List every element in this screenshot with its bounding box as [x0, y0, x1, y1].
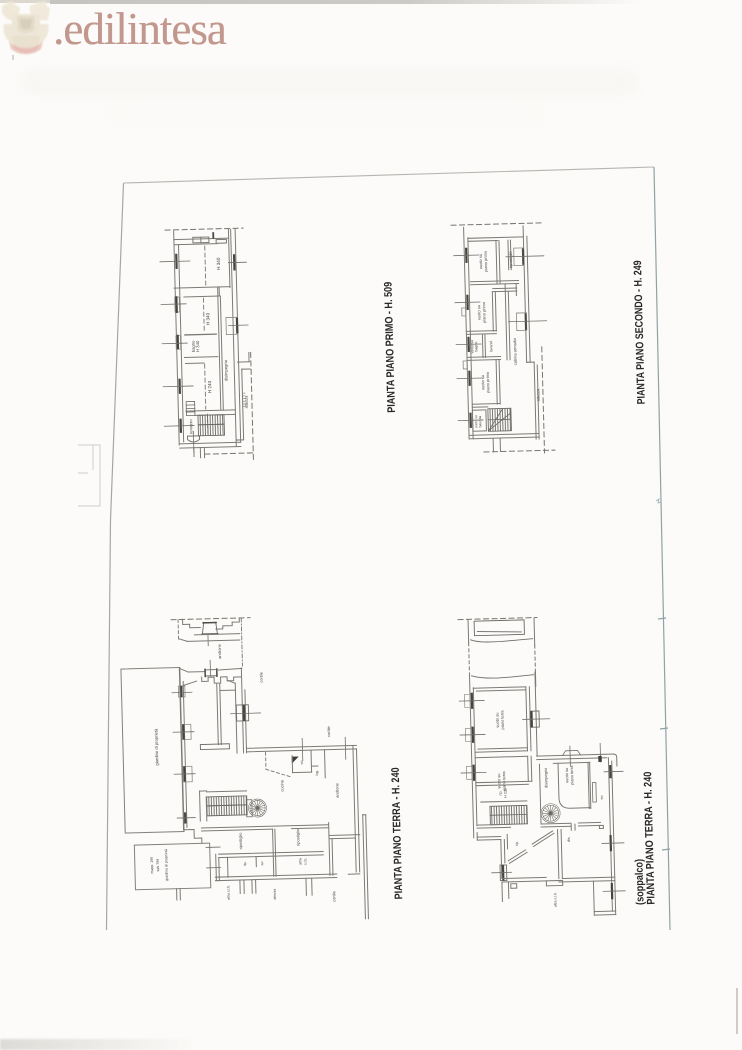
svg-text:H 240: H 240	[207, 380, 212, 393]
svg-text:androne: androne	[217, 643, 222, 659]
svg-text:piano primo: piano primo	[485, 371, 491, 393]
svg-text:cucina: cucina	[279, 779, 284, 791]
svg-text:altezza: altezza	[243, 395, 248, 409]
svg-text:PIANTA PIANO TERRA - H. 240: PIANTA PIANO TERRA - H. 240	[390, 767, 405, 899]
svg-text:ripostiglio: ripostiglio	[295, 828, 300, 846]
svg-text:lavand.: lavand.	[489, 340, 493, 352]
svg-text:s.t.b.: s.t.b.	[303, 858, 307, 866]
svg-text:H 235: H 235	[503, 788, 507, 798]
svg-text:altra s.t.b.: altra s.t.b.	[226, 885, 230, 900]
svg-text:mapp. 199: mapp. 199	[150, 857, 154, 874]
svg-text:altezza: altezza	[535, 388, 540, 402]
svg-text:piano primo: piano primo	[481, 301, 487, 323]
svg-text:disimpegno: disimpegno	[543, 767, 549, 788]
svg-text:wc: wc	[600, 795, 604, 800]
svg-text:altra: altra	[298, 858, 302, 865]
svg-text:wc: wc	[300, 760, 304, 765]
svg-text:ing.: ing.	[315, 770, 319, 776]
svg-text:piano primo: piano primo	[483, 250, 489, 272]
svg-text:PIANTA PIANO SECONDO - H. 249: PIANTA PIANO SECONDO - H. 249	[632, 260, 648, 404]
svg-text:wc: wc	[260, 861, 264, 866]
svg-text:cortile: cortile	[326, 725, 331, 737]
svg-text:cortile: cortile	[331, 890, 336, 902]
svg-text:altra s.t.b.: altra s.t.b.	[553, 892, 557, 907]
svg-text:PIANTA PIANO PRIMO - H. 509: PIANTA PIANO PRIMO - H. 509	[383, 282, 398, 413]
svg-text:cabina armadio: cabina armadio	[512, 337, 518, 365]
svg-text:H 340: H 340	[195, 340, 200, 352]
svg-text:rip.: rip.	[515, 841, 519, 846]
svg-text:H 340: H 340	[205, 312, 210, 325]
svg-text:rip.: rip.	[499, 790, 503, 795]
svg-text:piano terra: piano terra	[569, 765, 575, 785]
svg-text:disimpegno: disimpegno	[223, 359, 229, 381]
svg-text:ripostiglio: ripostiglio	[238, 832, 243, 850]
svg-text:piano terra: piano terra	[499, 710, 505, 730]
svg-text:cortile: cortile	[258, 671, 263, 683]
svg-text:dis.: dis.	[567, 836, 571, 842]
svg-text:H 340: H 340	[216, 257, 221, 270]
svg-text:sub 799: sub 799	[156, 859, 160, 872]
svg-text:rip.: rip.	[243, 861, 247, 866]
svg-text:bagno: bagno	[474, 342, 478, 352]
svg-text:giardino di proprietà: giardino di proprietà	[153, 728, 159, 766]
svg-text:giardino di proprietà: giardino di proprietà	[164, 849, 169, 881]
svg-text:bascula: bascula	[478, 416, 482, 428]
svg-text:ripostiglio: ripostiglio	[508, 250, 513, 268]
svg-text:(soppalco): (soppalco)	[633, 859, 646, 906]
svg-text:piano terra: piano terra	[501, 771, 507, 791]
svg-text:altezza: altezza	[273, 889, 277, 900]
svg-text:terrazzo: terrazzo	[188, 418, 193, 433]
svg-text:androne: androne	[334, 782, 339, 798]
